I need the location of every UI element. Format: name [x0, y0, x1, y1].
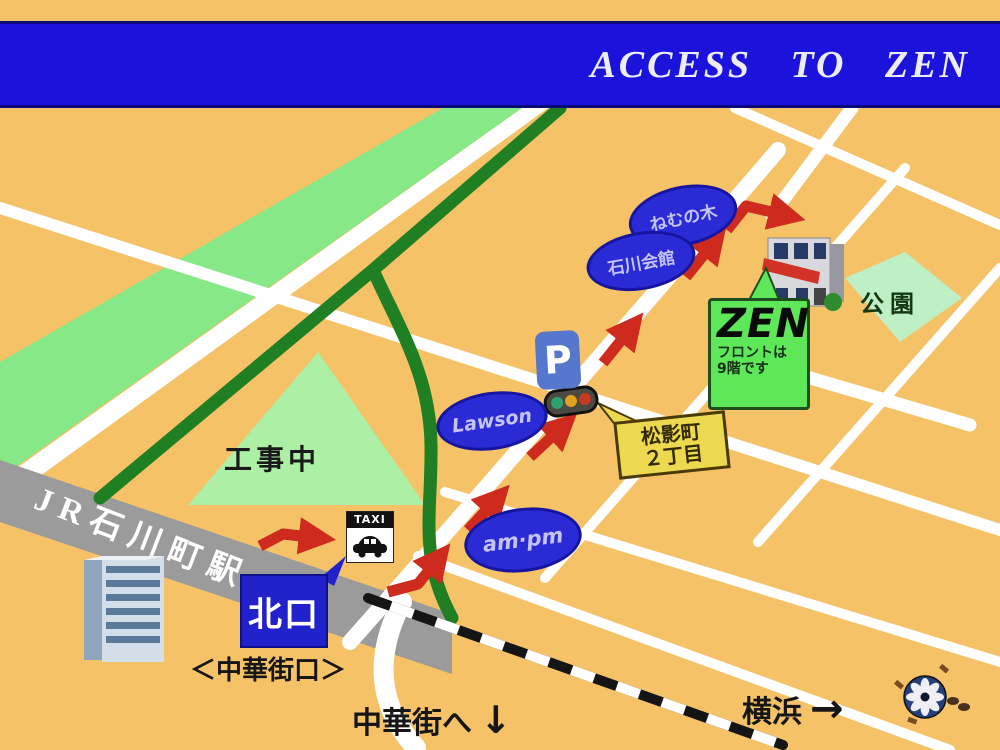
taxi-stand-sign: TAXI [346, 511, 394, 563]
zen-note-line1: フロントは [717, 345, 787, 361]
landmark-label: 石川会館 [605, 243, 676, 279]
landmark-label: Lawson [451, 405, 534, 438]
landmark-label: am·pm [481, 523, 564, 557]
intersection-line2: ２丁目 [642, 442, 704, 470]
compass-icon [894, 664, 970, 725]
banner-title: ACCESS TO ZEN [590, 43, 970, 87]
landmark-label: ねむの木 [647, 197, 719, 236]
zen-note-line2: 9階です [717, 361, 769, 377]
north-exit-box: 北口 [240, 574, 328, 648]
parking-letter: P [543, 337, 573, 382]
to-chinatown-label: 中華街へ ↓ [352, 698, 512, 742]
map-canvas [0, 0, 1000, 750]
zen-name: ZEN [717, 303, 810, 345]
park-label: 公園 [860, 284, 920, 319]
destination-zen-box: ZEN フロントは 9階です [708, 298, 810, 410]
right-arrow-icon: → [810, 686, 844, 732]
taxi-label: TAXI [347, 512, 393, 528]
construction-area [188, 352, 425, 505]
car-icon [347, 528, 393, 562]
intersection-callout: 松影町 ２丁目 [613, 410, 730, 479]
to-yokohama-text: 横浜 [742, 687, 802, 731]
to-yokohama-label: 横浜 → [742, 686, 844, 732]
title-banner: ACCESS TO ZEN [0, 21, 1000, 108]
north-exit-label: 北口 [248, 587, 320, 636]
shrub [824, 293, 842, 311]
station-building [84, 556, 164, 662]
down-arrow-icon: ↓ [480, 698, 512, 742]
to-chinatown-text: 中華街へ [352, 698, 472, 742]
parking-sign: P [535, 330, 582, 390]
under-construction-label: 工事中 [224, 438, 320, 478]
chinatown-exit-label: ＜中華街口＞ [190, 650, 346, 687]
